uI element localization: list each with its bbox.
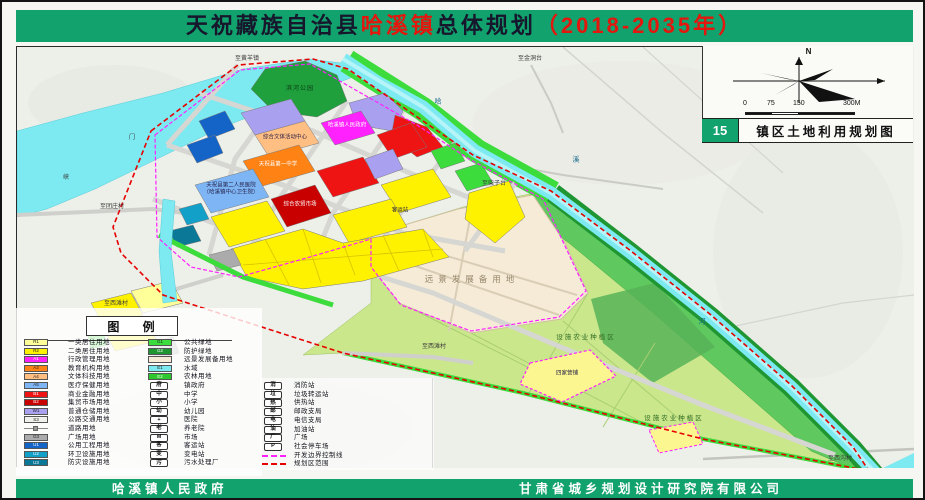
scale-label: 0 bbox=[743, 100, 747, 107]
map-sheet-title: 镇区土地利用规划图 bbox=[739, 119, 913, 142]
footer-right-text: 甘肃省城乡规划设计研究院有限公司 bbox=[519, 479, 783, 500]
plan-title-part-town: 哈溪镇 bbox=[361, 10, 436, 42]
plan-title-part: 总体规划 bbox=[436, 10, 536, 42]
map-sheet-number: 15 bbox=[702, 119, 739, 142]
sheet-title-strip: 15 镇区土地利用规划图 bbox=[702, 118, 913, 143]
scale-label: 300M bbox=[843, 100, 861, 107]
footer-left-text: 哈溪镇人民政府 bbox=[112, 479, 228, 500]
north-arrow-icon bbox=[703, 55, 914, 105]
scale-bar bbox=[745, 112, 855, 115]
plan-title-banner: 天祝藏族自治县哈溪镇总体规划（2018-2035年） bbox=[16, 10, 913, 42]
plan-sheet: 天祝藏族自治县哈溪镇总体规划（2018-2035年） bbox=[0, 0, 925, 500]
plan-title-part: 天祝藏族自治县 bbox=[186, 10, 361, 42]
scale-label: 150 bbox=[793, 100, 805, 107]
footer-bar: 哈溪镇人民政府 甘肃省城乡规划设计研究院有限公司 bbox=[16, 479, 913, 500]
scale-label: 75 bbox=[767, 100, 775, 107]
plan-title-part-years: （2018-2035年） bbox=[536, 10, 743, 42]
